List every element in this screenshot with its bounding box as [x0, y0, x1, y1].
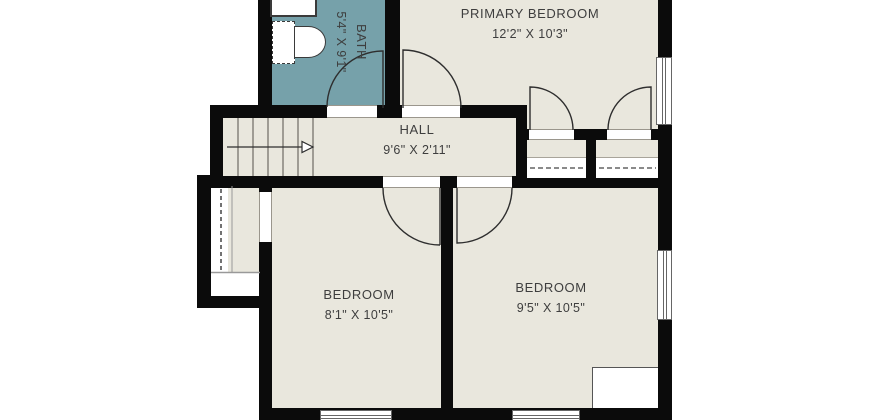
chase-cutout	[592, 367, 658, 408]
window-bedroom-right-south	[512, 410, 580, 420]
wall-bath-primary	[385, 0, 400, 118]
toilet-tank-icon	[272, 21, 295, 64]
closet-right-shelf	[596, 157, 658, 178]
window-frame	[321, 415, 391, 419]
bedroom-left-door-opening	[383, 176, 440, 188]
window-frame	[662, 58, 666, 124]
wall-bath-left	[258, 0, 272, 118]
wall-stairs-left	[210, 105, 223, 178]
wall-hall-closet	[516, 106, 527, 188]
window-primary-east	[656, 57, 672, 125]
window-frame	[663, 251, 667, 319]
bath-door-opening	[327, 105, 377, 118]
window-bedroom-left-south	[320, 410, 392, 420]
label-hall: HALL 9'6" X 2'11"	[352, 119, 482, 161]
wall-closet-mid	[586, 129, 596, 188]
room-dims: 12'2" X 10'3"	[430, 24, 630, 45]
floor-plan: PRIMARY BEDROOM 12'2" X 10'3" BATH 5'4" …	[0, 0, 870, 420]
label-bath: BATH 5'4" X 9'1"	[330, 7, 372, 77]
room-name: PRIMARY BEDROOM	[430, 3, 630, 24]
label-bedroom-right: BEDROOM 9'5" X 10'5"	[481, 277, 621, 319]
room-name: BEDROOM	[289, 284, 429, 305]
room-dims: 8'1" X 10'5"	[289, 305, 429, 326]
label-bedroom-left: BEDROOM 8'1" X 10'5"	[289, 284, 429, 326]
closet-left-opening	[529, 129, 574, 140]
room-name: BEDROOM	[481, 277, 621, 298]
bedroom-left-side-opening	[259, 192, 272, 242]
wall-landing-left	[197, 175, 211, 308]
landing-strip	[228, 185, 260, 275]
window-bedroom-right-east	[657, 250, 672, 320]
primary-door-opening	[402, 105, 460, 118]
closet-left-shelf	[527, 157, 586, 178]
room-dims: 5'4" X 9'1"	[330, 7, 351, 77]
room-dims: 9'5" X 10'5"	[481, 298, 621, 319]
room-name: BATH	[351, 7, 372, 77]
sink-icon	[270, 0, 317, 17]
window-frame	[513, 415, 579, 419]
room-dims: 9'6" X 2'11"	[352, 140, 482, 161]
wall-bedrooms-divider	[441, 176, 453, 420]
room-name: HALL	[352, 119, 482, 140]
bedroom-right-door-opening	[457, 176, 512, 188]
label-primary-bedroom: PRIMARY BEDROOM 12'2" X 10'3"	[430, 3, 630, 45]
landing-lower-void	[211, 273, 260, 298]
closet-right-opening	[607, 129, 651, 140]
